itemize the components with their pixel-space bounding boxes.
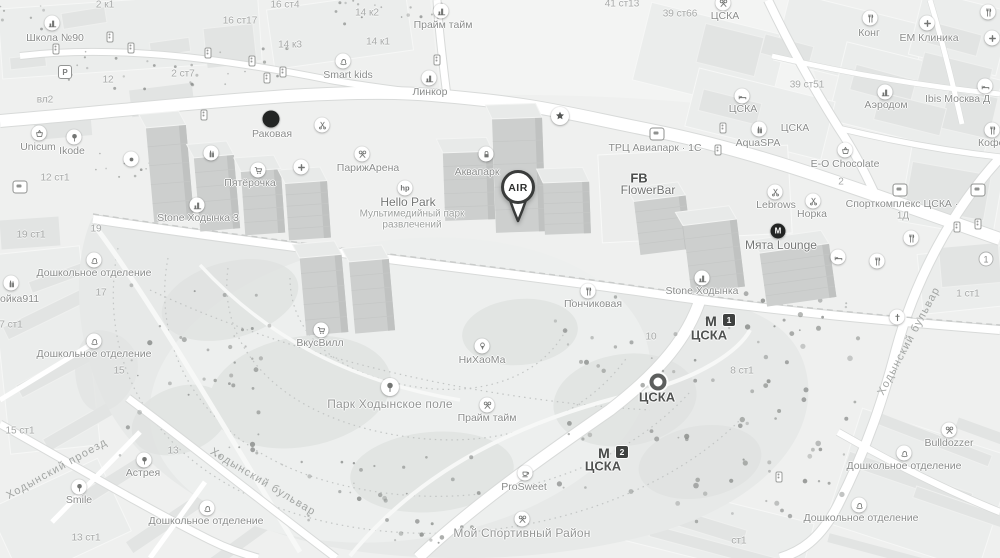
metro-star-pin-icon[interactable] — [551, 107, 569, 125]
brand-dark-dot-icon[interactable] — [263, 111, 280, 128]
poi-nihaoma-label[interactable]: НиХаоМа — [459, 354, 506, 366]
poi-unicum-label[interactable]: Unicum — [20, 141, 56, 153]
poi-aquapark-label[interactable]: Аквапарк — [455, 166, 500, 178]
cska-metro-exit2-exit-badge: 2 — [615, 445, 629, 459]
traffic-light-icon — [975, 219, 982, 230]
traffic-light-icon — [434, 55, 441, 66]
poi-cska-sport-nw-label[interactable]: ЦСКА — [711, 10, 739, 22]
horse-icon[interactable] — [87, 334, 102, 349]
traffic-light-icon — [201, 110, 208, 121]
poi-stone-khodynka-label[interactable]: Stone Ходынка — [666, 285, 739, 297]
poi-doshkolnoe-5-label[interactable]: Дошкольное отделение — [804, 512, 919, 524]
poi-prime-time-north-label[interactable]: Прайм тайм — [414, 19, 473, 31]
fork-icon[interactable] — [985, 123, 1000, 138]
traffic-light-icon — [720, 123, 727, 134]
poi-aquaspa-label[interactable]: AquaSPA — [736, 137, 781, 149]
poi-doshkolnoe-4-label[interactable]: Дошкольное отделение — [847, 460, 962, 472]
horse-icon[interactable] — [852, 498, 867, 513]
transport-stop-icon[interactable] — [13, 181, 28, 194]
traffic-light-icon — [715, 145, 722, 156]
address-label: 14 к1 — [366, 37, 390, 48]
sport-icon[interactable] — [480, 398, 495, 413]
address-label: 17 — [95, 288, 106, 299]
address-label: 16 ст17 — [223, 16, 258, 27]
poi-cska-road-label[interactable]: ЦСКА — [781, 122, 809, 134]
street-name-label: Ходынский проезд — [4, 436, 109, 502]
address-label: 2 к1 — [96, 0, 114, 11]
poi-myata-lounge-label[interactable]: Мята Lounge — [745, 238, 817, 252]
horse-icon[interactable] — [200, 501, 215, 516]
sport-icon[interactable] — [355, 147, 370, 162]
fork-icon[interactable] — [981, 5, 996, 20]
poi-bulldozzer-label[interactable]: Bulldozzer — [924, 437, 973, 449]
address-label: 13 ст1 — [71, 533, 100, 544]
spa-icon[interactable] — [4, 276, 19, 291]
fork-icon[interactable] — [904, 231, 919, 246]
cska-metro-entrance-label[interactable]: ЦСКА — [639, 390, 675, 405]
poi-aviapark-stop-label[interactable]: ТРЦ Авиапарк · 1С — [608, 142, 701, 154]
address-label: 10 — [645, 332, 656, 343]
cross-icon[interactable] — [920, 16, 935, 31]
address-label: 19 ст1 — [16, 230, 45, 241]
cart-icon[interactable] — [314, 323, 329, 338]
poi-doshkolnoe-1-label[interactable]: Дошкольное отделение — [37, 267, 152, 279]
cska-metro-exit2-label[interactable]: ЦСКА — [585, 459, 621, 474]
traffic-light-icon — [776, 472, 783, 483]
poi-lebrows-label[interactable]: Lebrows — [756, 199, 796, 211]
air-marker[interactable]: AIR — [495, 168, 541, 226]
parking-icon[interactable]: P — [58, 65, 72, 79]
fork-icon[interactable] — [870, 254, 885, 269]
poi-ponchikovaya-label[interactable]: Пончиковая — [564, 298, 622, 310]
poi-kofemania-label[interactable]: Кофемания — [978, 137, 1000, 149]
poi-prime-time-park-label[interactable]: Прайм тайм — [458, 412, 517, 424]
basket-icon[interactable] — [838, 143, 853, 158]
poi-doshkolnoe-3-label[interactable]: Дошкольное отделение — [149, 515, 264, 527]
horse-icon[interactable] — [897, 446, 912, 461]
icecream-icon[interactable] — [475, 339, 490, 354]
address-label: 14 к2 — [355, 8, 379, 19]
address-label: 7 ст1 — [0, 320, 23, 331]
poi-smart-kids-label[interactable]: Smart kids — [323, 69, 373, 81]
address-label: 8 ст1 — [730, 366, 753, 377]
poi-school-90-label[interactable]: Школа №90 — [26, 32, 84, 44]
building-icon[interactable] — [434, 4, 449, 19]
poi-rakovaya-label[interactable]: Раковая — [252, 128, 292, 140]
building-icon[interactable] — [422, 71, 437, 86]
street-name-label: Ходынский бульвар — [875, 285, 942, 397]
tree-icon[interactable] — [137, 453, 152, 468]
lock-icon[interactable] — [479, 147, 494, 162]
poi-cska-hotel-label[interactable]: ЦСКА — [729, 103, 757, 115]
address-label: 39 ст51 — [790, 80, 825, 91]
poi-vkusvill-label[interactable]: ВкусВилл — [296, 337, 343, 349]
building-icon[interactable] — [45, 16, 60, 31]
scissors-icon[interactable] — [315, 118, 330, 133]
poi-hello-park-icon[interactable]: hp — [398, 181, 413, 196]
poi-pyaterochka-label[interactable]: Пятёрочка — [224, 177, 275, 189]
poi-hello-park-subline: Мультимедийный парк — [360, 209, 465, 220]
dot-icon[interactable] — [124, 152, 139, 167]
poi-prosweet-label[interactable]: ProSweet — [501, 481, 547, 493]
traffic-light-icon — [205, 48, 212, 59]
traffic-light-icon — [53, 44, 60, 55]
map-canvas[interactable]: Школа №90Smart kidsПрайм таймЛинкорЦСКАК… — [0, 0, 1000, 558]
scissors-icon[interactable] — [806, 194, 821, 209]
address-label: 15 ст1 — [5, 426, 34, 437]
street-name-label: Ходынский бульвар — [208, 446, 318, 519]
poi-oika911-label[interactable]: ойка911 — [0, 293, 39, 305]
poi-park-khodynskoe-pole-label[interactable]: Парк Ходынское поле — [327, 397, 453, 411]
address-label: 19 — [90, 224, 101, 235]
sport-icon[interactable] — [716, 0, 731, 11]
poi-astreya-label[interactable]: Астрея — [126, 467, 160, 479]
transport-stop-icon[interactable] — [893, 184, 908, 197]
address-label: 14 к3 — [278, 40, 302, 51]
church-icon[interactable] — [890, 310, 905, 325]
poi-smile-label[interactable]: Smile — [66, 494, 92, 506]
address-label: 39 ст66 — [663, 9, 698, 20]
air-marker-label: AIR — [508, 182, 528, 194]
address-label: 16 ст4 — [270, 0, 299, 11]
address-label: 13 — [167, 446, 178, 457]
fork-icon[interactable] — [581, 284, 596, 299]
poi-hello-park-label[interactable]: Hello Park — [380, 195, 435, 209]
basket-icon[interactable] — [32, 126, 47, 141]
cska-metro-exit1-label[interactable]: ЦСКА — [691, 328, 727, 343]
metro-entrance-icon[interactable] — [650, 374, 667, 391]
entrance-number-icon: 1 — [979, 252, 994, 267]
spa-icon[interactable] — [752, 122, 767, 137]
address-label: 1 ст1 — [956, 289, 979, 300]
tree-icon[interactable] — [67, 130, 82, 145]
poi-em-clinic-label[interactable]: ЕМ Клиника — [899, 32, 958, 44]
address-label: 2 ст7 — [171, 69, 194, 80]
traffic-light-icon — [264, 73, 271, 84]
poi-flowerbar-subline: FlowerBar — [621, 183, 676, 197]
transport-stop-icon[interactable] — [650, 128, 665, 141]
traffic-light-icon — [280, 67, 287, 78]
poi-parizh-arena-label[interactable]: ПарижАрена — [337, 162, 399, 174]
bed-icon[interactable] — [735, 89, 750, 104]
scissors-icon[interactable] — [768, 185, 783, 200]
traffic-light-icon — [249, 56, 256, 67]
cross-icon[interactable] — [294, 160, 309, 175]
horse-icon[interactable] — [336, 54, 351, 69]
address-label: 2 — [838, 177, 844, 188]
poi-sportkompleks-cska-label[interactable]: Спорткомплекс ЦСКА · — [846, 198, 959, 210]
poi-hello-park-subline: развлечений — [382, 220, 441, 231]
poi-my-sport-district-label[interactable]: Мой Спортивный Район — [453, 526, 590, 540]
traffic-light-icon — [128, 43, 135, 54]
cup-icon[interactable] — [518, 466, 533, 481]
traffic-light-icon — [954, 222, 961, 233]
poi-myata-lounge-m-icon[interactable]: М — [771, 224, 786, 239]
horse-icon[interactable] — [87, 253, 102, 268]
labels-layer: Школа №90Smart kidsПрайм таймЛинкорЦСКАК… — [0, 0, 1000, 558]
poi-kong-label[interactable]: Конг — [858, 27, 880, 39]
poi-doshkolnoe-2-label[interactable]: Дошкольное отделение — [37, 348, 152, 360]
building-icon[interactable] — [190, 198, 205, 213]
transport-stop-icon[interactable] — [971, 184, 986, 197]
address-label: 12 — [102, 75, 113, 86]
poi-sportkompleks-cska-subline: 1Д — [897, 211, 909, 222]
bed-icon[interactable] — [978, 79, 993, 94]
address-label: 15 — [113, 366, 124, 377]
sport-icon[interactable] — [515, 512, 530, 527]
poi-norka-label[interactable]: Норка — [797, 208, 827, 220]
poi-aerodom-label[interactable]: Аэродом — [864, 99, 907, 111]
cross-icon[interactable] — [985, 31, 1000, 46]
poi-eo-chocolate-label[interactable]: E-O Chocolate — [811, 158, 880, 170]
tree-icon[interactable] — [72, 480, 87, 495]
bed-icon[interactable] — [831, 250, 846, 265]
fork-icon[interactable] — [863, 11, 878, 26]
poi-ikode-label[interactable]: Ikode — [59, 145, 85, 157]
address-label: 12 ст1 — [40, 173, 69, 184]
traffic-light-icon — [107, 32, 114, 43]
sport-icon[interactable] — [942, 423, 957, 438]
poi-stone-khodynka-3-label[interactable]: Stone Ходынка 3 — [157, 212, 239, 224]
cart-icon[interactable] — [251, 163, 266, 178]
building-icon[interactable] — [878, 85, 893, 100]
building-icon[interactable] — [695, 271, 710, 286]
cska-metro-exit1-exit-badge: 1 — [722, 313, 736, 327]
address-label: 41 ст13 — [605, 0, 640, 10]
poi-ibis-moskva-label[interactable]: Ibis Москва Д — [925, 93, 990, 105]
address-label: вл2 — [37, 95, 53, 106]
spa-icon[interactable] — [204, 146, 219, 161]
poi-linkor-label[interactable]: Линкор — [413, 86, 448, 98]
tree-icon[interactable] — [381, 378, 399, 396]
address-label: ст1 — [731, 536, 746, 547]
